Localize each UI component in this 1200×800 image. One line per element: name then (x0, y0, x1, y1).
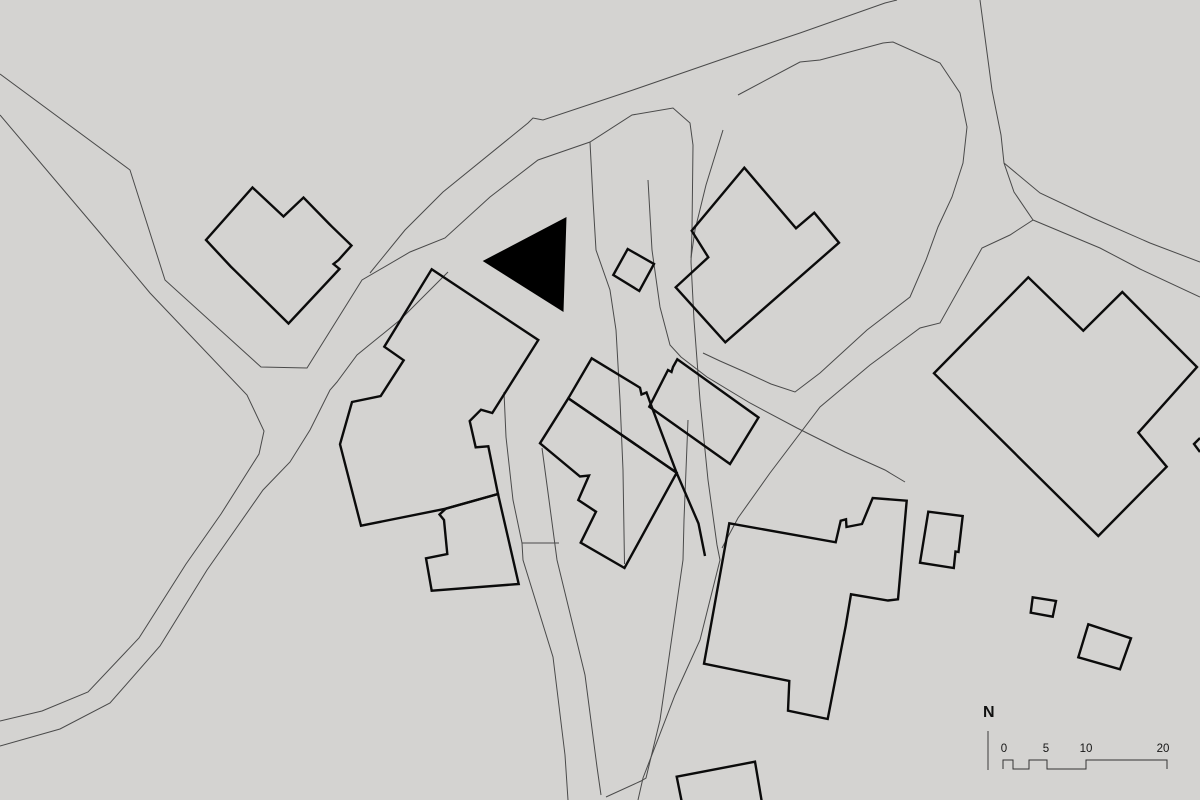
road-main-upper (370, 0, 897, 273)
road-alley-east (542, 448, 601, 795)
subject-building-layer (483, 217, 567, 312)
scale-label-5: 5 (1031, 743, 1061, 755)
bottom-edge-building (677, 762, 762, 800)
small-outbuilding (920, 512, 963, 568)
tiny-square-building (1031, 597, 1056, 616)
central-steep-edge (652, 407, 705, 556)
road-alley-west (504, 392, 568, 800)
buildings-layer (206, 168, 1200, 800)
left-main-building (340, 269, 538, 525)
left-annex-building (426, 494, 519, 591)
house-upper-right (676, 168, 839, 343)
small-diamond-building (613, 249, 654, 291)
road-east-upper (1004, 163, 1200, 262)
central-lower-building (540, 398, 677, 568)
scale-label-10: 10 (1071, 743, 1101, 755)
scale-label-0: 0 (989, 743, 1019, 755)
small-rect-building (1078, 624, 1131, 669)
scale-bar (1003, 760, 1167, 769)
road-east-lower (1033, 220, 1200, 297)
north-label: N (979, 704, 999, 722)
road-ne-bend-east (722, 0, 1033, 548)
road-west-outer (0, 115, 264, 721)
road-main-inner (0, 74, 720, 800)
right-large-building (934, 277, 1197, 536)
edge-clipped-building (1194, 438, 1200, 452)
house-top-left (206, 188, 352, 324)
roads-layer (0, 0, 1200, 800)
scale-label-20: 20 (1148, 743, 1178, 755)
parcel-line-center (590, 142, 625, 564)
subject-triangle (483, 217, 567, 312)
site-plan-svg (0, 0, 1200, 800)
road-ne-bend-west (703, 42, 967, 392)
site-plan: N 0 5 10 20 (0, 0, 1200, 800)
large-lower-building (704, 498, 907, 719)
central-slab-edge-a (568, 358, 651, 406)
